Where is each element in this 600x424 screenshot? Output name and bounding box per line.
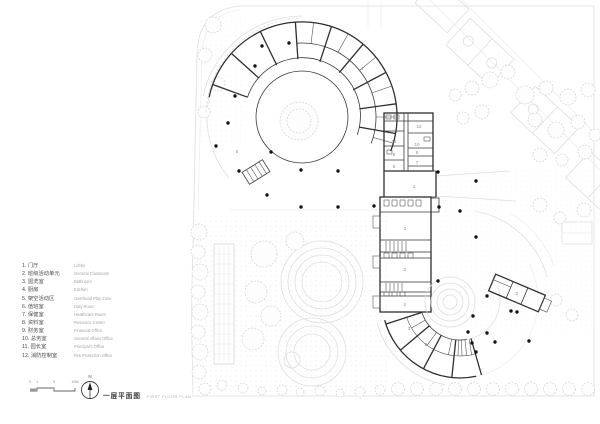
legend-label-zh: 6. 值班室 [22, 303, 74, 311]
scale-tick-label: 0 [29, 380, 31, 384]
room-number-label: 1 [413, 184, 416, 189]
plan-title-en: FIRST FLOOR PLAN [147, 394, 191, 399]
legend-label-zh: 8. 资料室 [22, 319, 74, 327]
legend: 1. 门厅Lobby 2. 班级活动单元General Classroom 3.… [22, 262, 157, 360]
scale-bar: 0 1 5 10M [27, 378, 85, 396]
play-ramp [214, 244, 234, 364]
legend-label-en: Resource Center [74, 319, 105, 327]
legend-item: 10. 总务室General Affairs Office [22, 335, 157, 343]
legend-label-en: Financial Office [74, 327, 102, 335]
room-number-label: 2 [404, 267, 407, 272]
legend-label-en: General Classroom [74, 270, 109, 278]
site-layer [191, 0, 600, 397]
legend-item: 2. 班级活动单元General Classroom [22, 270, 157, 278]
legend-label-zh: 7. 保健室 [22, 311, 74, 319]
scale-tick-label: 1 [36, 380, 38, 384]
lobby [380, 171, 436, 197]
legend-item: 4. 厨房Kitchen [22, 286, 157, 294]
legend-item: 7. 保健室Healthcare Room [22, 311, 157, 319]
legend-label-zh: 11. 园长室 [22, 343, 74, 351]
legend-label-en: Fire Protection Office [74, 352, 112, 360]
legend-label-zh: 4. 厨房 [22, 286, 74, 294]
legend-label-zh: 3. 盥洗室 [22, 278, 74, 286]
room-number-label: 11 [392, 139, 397, 144]
legend-item: 6. 值班室Duty Room [22, 303, 157, 311]
room-number-label: 2 [404, 226, 407, 231]
legend-label-zh: 12. 消防控制室 [22, 352, 74, 360]
scale-tick-label: 10M [71, 380, 78, 384]
play-court [415, 0, 469, 33]
legend-label-zh: 2. 班级活动单元 [22, 270, 74, 278]
room-number-label: 4 [361, 66, 364, 71]
room-number-label: 10 [414, 142, 420, 147]
room-number-label: 2 [404, 302, 407, 307]
room-number-label: 8 [393, 152, 396, 157]
legend-label-en: Principal's Office [74, 343, 104, 351]
legend-label-en: Overhead Play Zone [74, 295, 112, 303]
room-number-label: 9 [416, 150, 419, 155]
site-plan-drawing: 5 1 2 2 2 3 2 2 11 12 10 8 9 6 7 4 [0, 0, 600, 424]
scale-tick-label: 5 [53, 380, 55, 384]
room-number-label: 7 [416, 160, 419, 165]
legend-item: 1. 门厅Lobby [22, 262, 157, 270]
legend-label-en: General Affairs Office [74, 335, 113, 343]
room-number-label: 5 [236, 149, 239, 154]
room-number-label: 12 [416, 124, 422, 129]
legend-label-zh: 5. 架空活动区 [22, 295, 74, 303]
legend-label-zh: 10. 总务室 [22, 335, 74, 343]
legend-item: 11. 园长室Principal's Office [22, 343, 157, 351]
plaza-stair [242, 160, 270, 185]
legend-item: 12. 消防控制室Fire Protection Office [22, 352, 157, 360]
north-arrow: N [79, 372, 103, 404]
room-number-label: 3 [408, 326, 411, 331]
plan-title: 一层平面图FIRST FLOOR PLAN [103, 385, 191, 403]
legend-label-en: Kitchen [74, 286, 88, 294]
legend-label-en: Lobby [74, 262, 85, 270]
legend-label-zh: 9. 财务室 [22, 327, 74, 335]
room-number-label: 2 [425, 342, 428, 347]
plan-title-zh: 一层平面图 [103, 393, 141, 400]
legend-label-zh: 1. 门厅 [22, 262, 74, 270]
floor-plan-sheet: 5 1 2 2 2 3 2 2 11 12 10 8 9 6 7 4 1. 门厅… [0, 0, 600, 424]
legend-item: 5. 架空活动区Overhead Play Zone [22, 295, 157, 303]
legend-label-en: Bathroom [74, 278, 92, 286]
room-number-label: 2 [516, 291, 519, 296]
legend-item: 3. 盥洗室Bathroom [22, 278, 157, 286]
title-block: 0 1 5 10M N 一层平面图FIRST FLOOR PLAN [27, 370, 307, 406]
legend-item: 9. 财务室Financial Office [22, 327, 157, 335]
north-label: N [88, 374, 91, 379]
legend-label-en: Healthcare Room [74, 311, 106, 319]
legend-label-en: Duty Room [74, 303, 94, 311]
room-number-label: 6 [393, 164, 396, 169]
legend-item: 8. 资料室Resource Center [22, 319, 157, 327]
